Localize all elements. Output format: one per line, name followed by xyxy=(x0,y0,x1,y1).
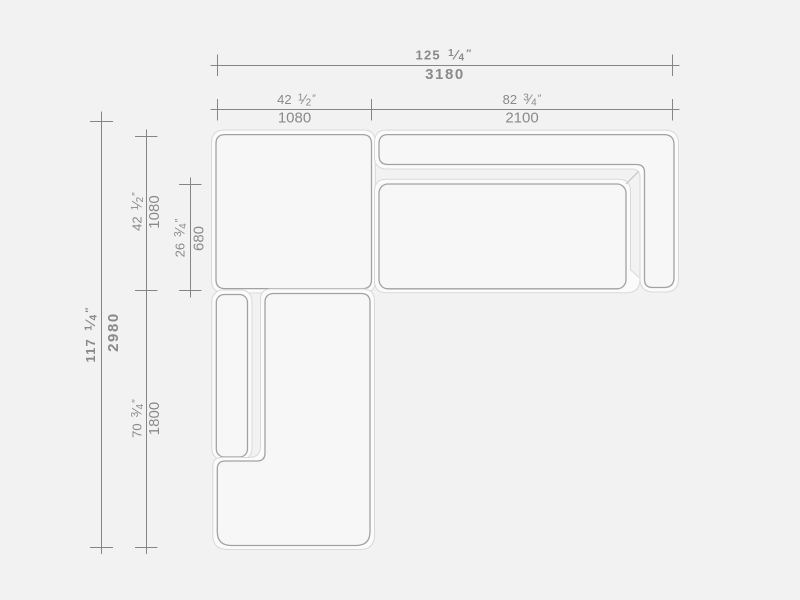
svg-text:1080: 1080 xyxy=(278,110,311,127)
svg-text:680: 680 xyxy=(191,226,208,251)
svg-text:1080: 1080 xyxy=(146,195,163,228)
svg-text:1800: 1800 xyxy=(146,402,163,435)
svg-text:2980: 2980 xyxy=(105,312,122,352)
svg-text:3180: 3180 xyxy=(425,66,465,83)
svg-text:2100: 2100 xyxy=(505,110,538,127)
